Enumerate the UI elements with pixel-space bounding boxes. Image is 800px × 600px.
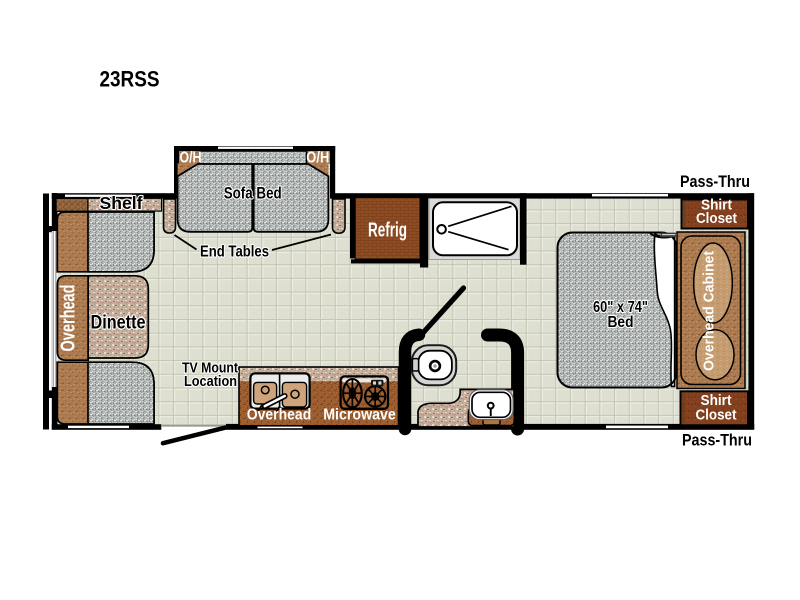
svg-text:Microwave: Microwave <box>323 406 396 423</box>
svg-text:O/H: O/H <box>180 150 202 167</box>
svg-text:O/H: O/H <box>306 150 329 167</box>
svg-text:Shelf: Shelf <box>100 193 143 213</box>
svg-text:Location: Location <box>184 373 237 390</box>
svg-text:Closet: Closet <box>696 211 737 227</box>
svg-text:Sofa Bed: Sofa Bed <box>224 184 282 202</box>
svg-text:Pass-Thru: Pass-Thru <box>680 172 750 191</box>
svg-text:Overhead: Overhead <box>247 406 312 423</box>
svg-text:Pass-Thru: Pass-Thru <box>682 431 752 450</box>
svg-text:Dinette: Dinette <box>91 312 146 333</box>
svg-text:Bed: Bed <box>608 314 634 331</box>
svg-text:23RSS: 23RSS <box>100 67 160 92</box>
svg-text:End Tables: End Tables <box>200 243 269 260</box>
svg-text:Overhead: Overhead <box>58 285 80 352</box>
svg-text:Closet: Closet <box>696 407 737 423</box>
svg-text:Overhead Cabinet: Overhead Cabinet <box>701 251 718 371</box>
svg-text:Refrig: Refrig <box>368 220 407 242</box>
